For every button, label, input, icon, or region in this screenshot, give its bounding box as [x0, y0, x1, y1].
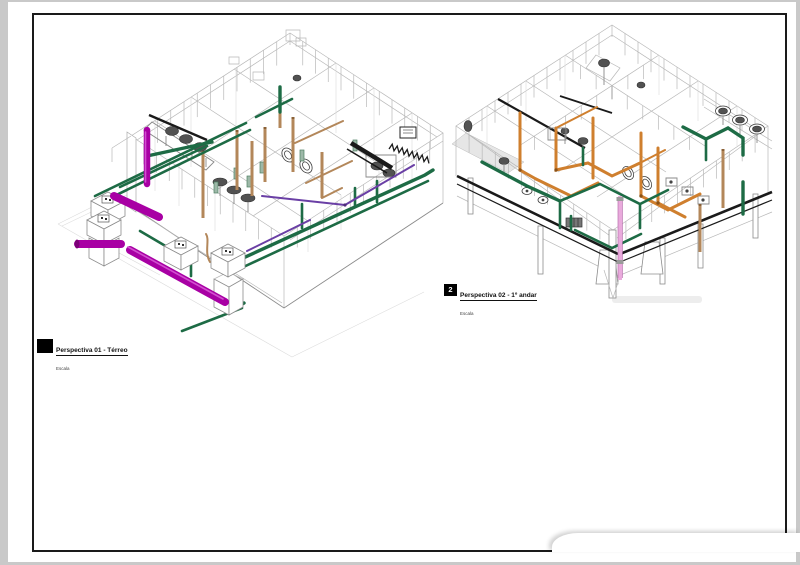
- viewport-perspectiva-02[interactable]: [452, 25, 772, 303]
- view-scale-2: Escala: [460, 311, 474, 316]
- ground-shadow: [612, 296, 702, 303]
- view-scale-1: Escala: [56, 366, 70, 371]
- view-number-box-1: [37, 339, 53, 353]
- purple-vent-pipes-terreo: [247, 165, 414, 251]
- drawing-sheet-page: { "sheet": { "background": "#ffffff", "b…: [0, 0, 800, 565]
- blank-title-block-overlay: [552, 533, 800, 552]
- view-label-2: 2 Perspectiva 02 - 1º andar Escala: [444, 284, 537, 320]
- view-title-1: Perspectiva 01 - Térreo: [56, 347, 128, 356]
- tan-pipe-stacks: [203, 112, 352, 262]
- view-label-1: Perspectiva 01 - Térreo Escala: [37, 339, 128, 375]
- sheet-drawing-canvas: [0, 0, 800, 565]
- view-number-box-2: 2: [444, 284, 457, 296]
- viewport-perspectiva-01[interactable]: [58, 30, 443, 357]
- view-title-2: Perspectiva 02 - 1º andar: [460, 292, 537, 301]
